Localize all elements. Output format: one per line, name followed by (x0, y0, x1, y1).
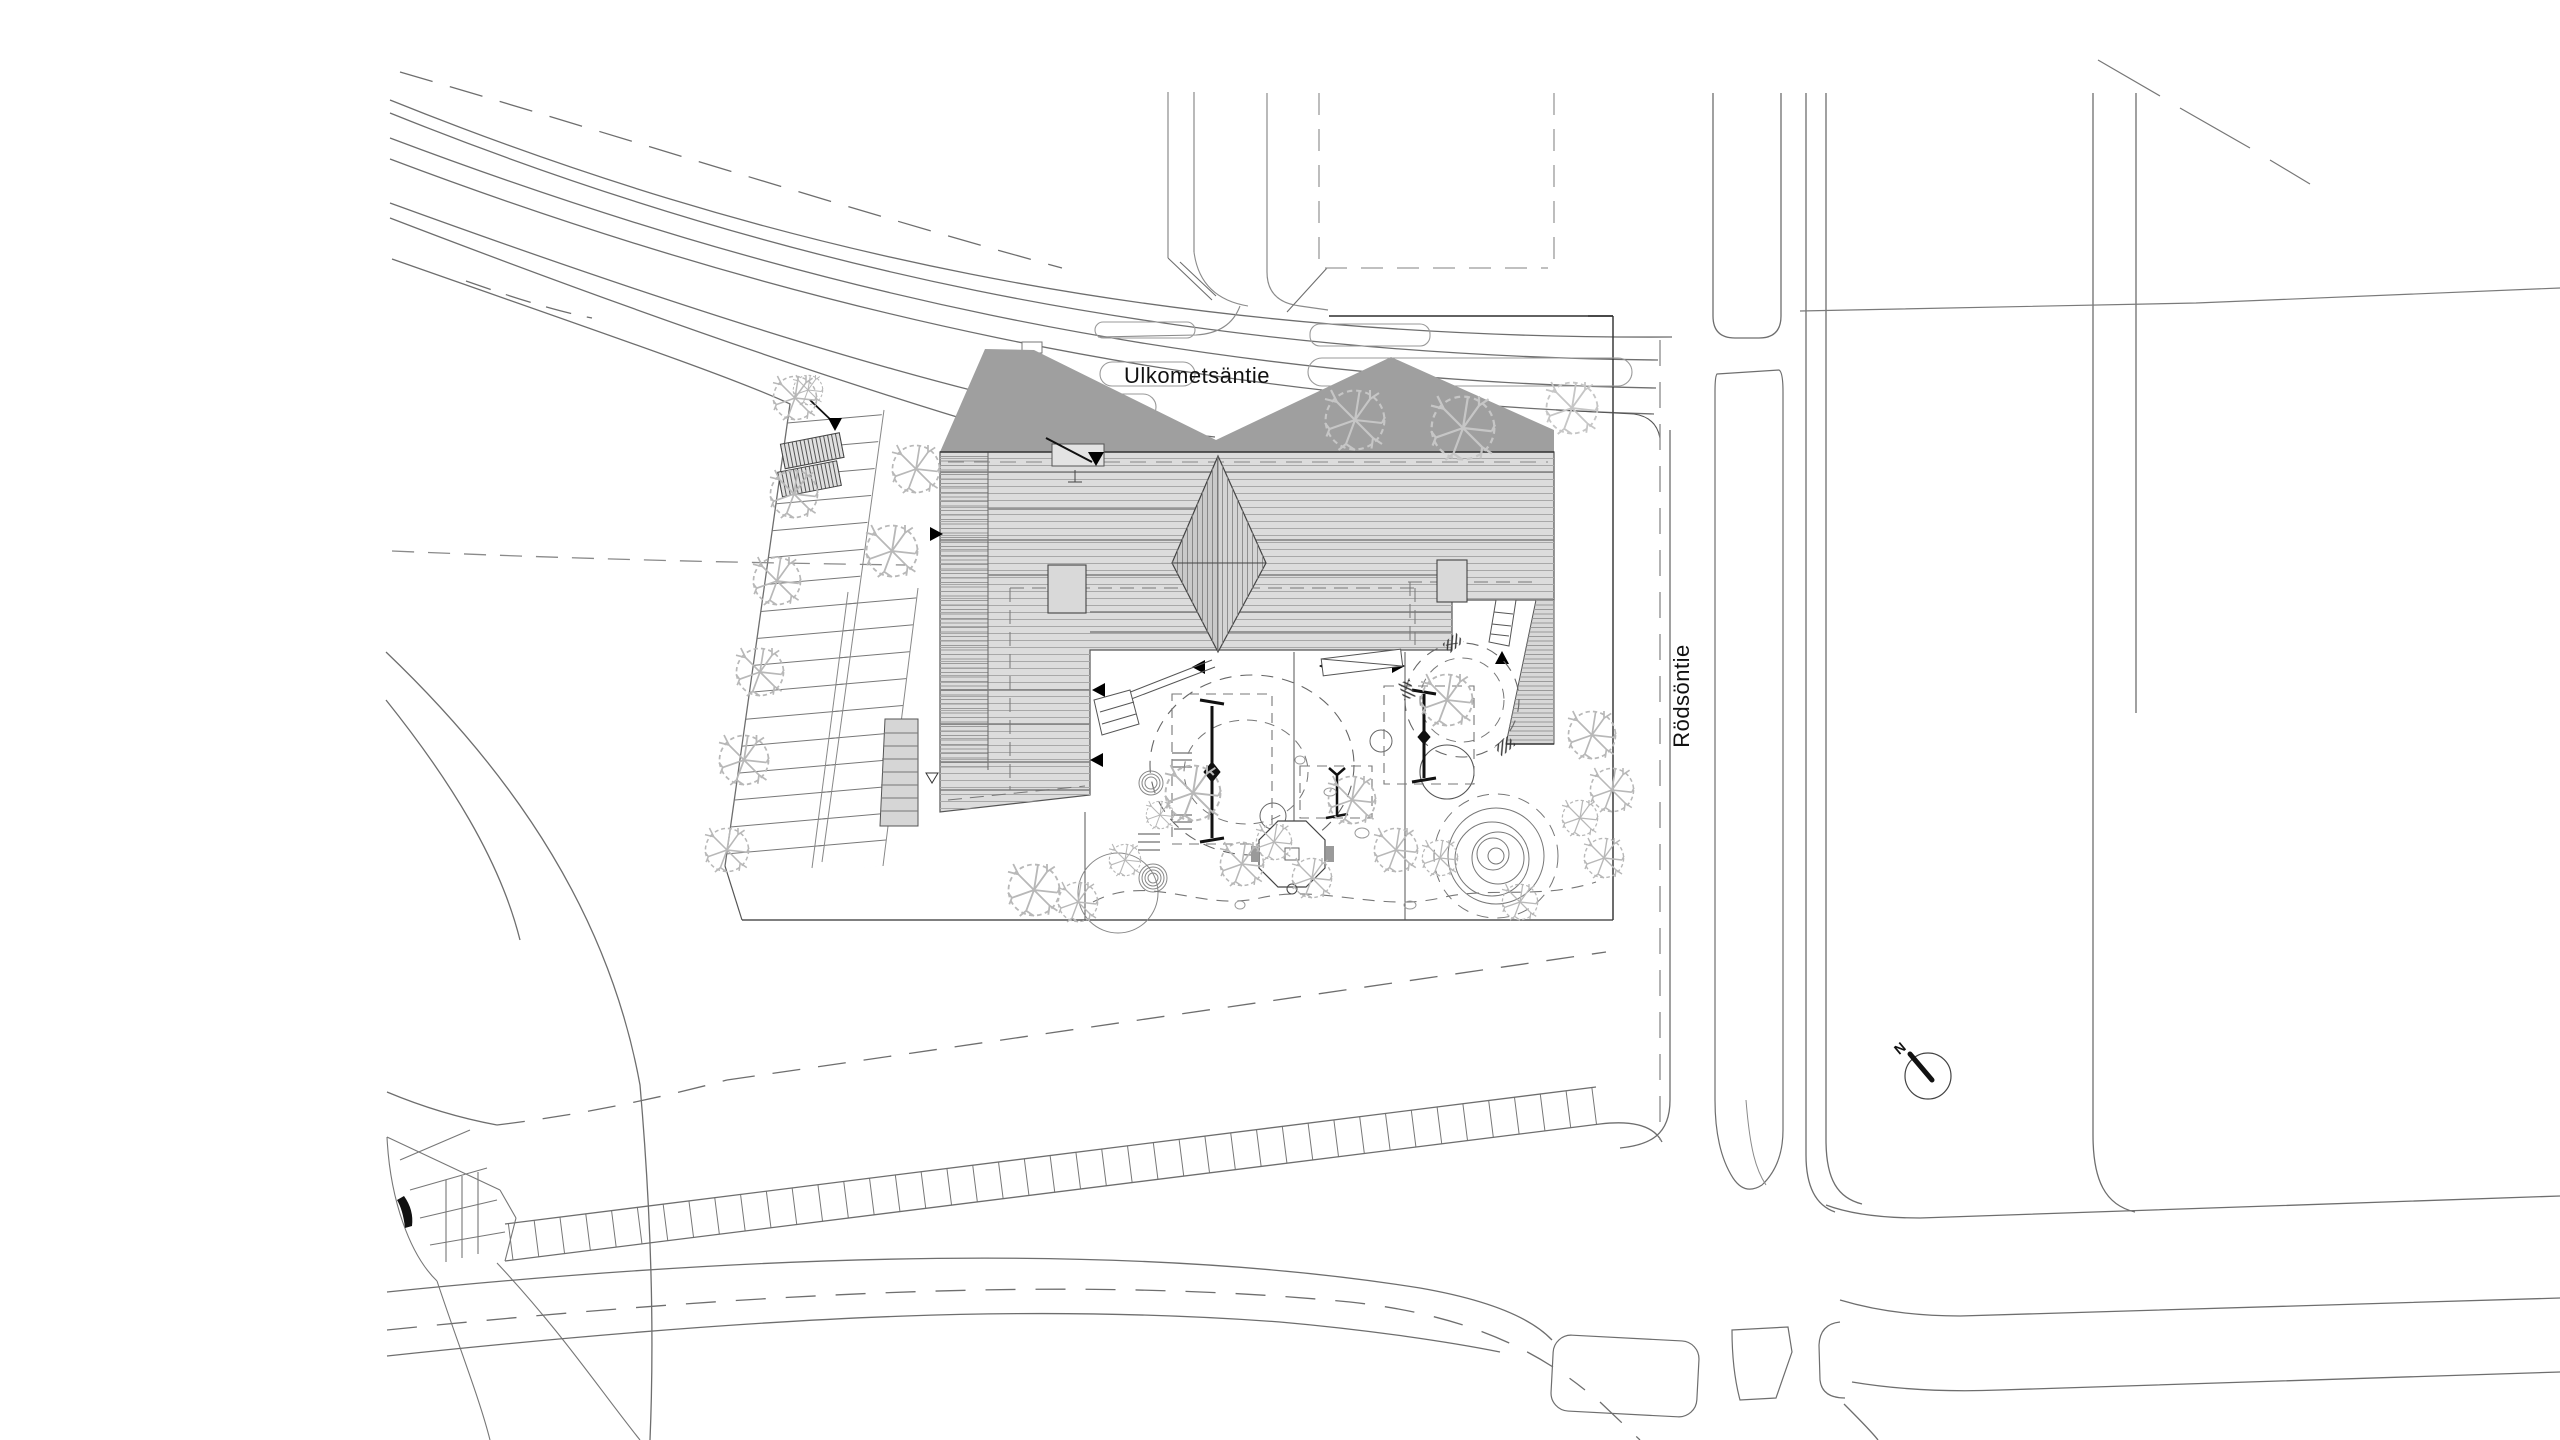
parking-strip-south (505, 1087, 1662, 1261)
stairs-west (880, 719, 938, 826)
parking-pocket (387, 1130, 640, 1440)
site-plan-canvas: Ulkometsäntie Rödsöntie N (0, 0, 2560, 1440)
north-arrow: N (1891, 1039, 1951, 1099)
plot-boundaries-north (1022, 92, 1632, 420)
north-needle-icon (1910, 1054, 1932, 1080)
road-rodsontie (1556, 60, 2560, 1212)
street-label-ulkometsantie: Ulkometsäntie (1124, 363, 1270, 388)
north-label: N (1891, 1039, 1909, 1058)
courtyard-fences (1085, 652, 1405, 920)
traffic-islands-south (1550, 1322, 1845, 1418)
building-roof (940, 438, 1554, 812)
street-label-rodsontie: Rödsöntie (1669, 644, 1694, 748)
